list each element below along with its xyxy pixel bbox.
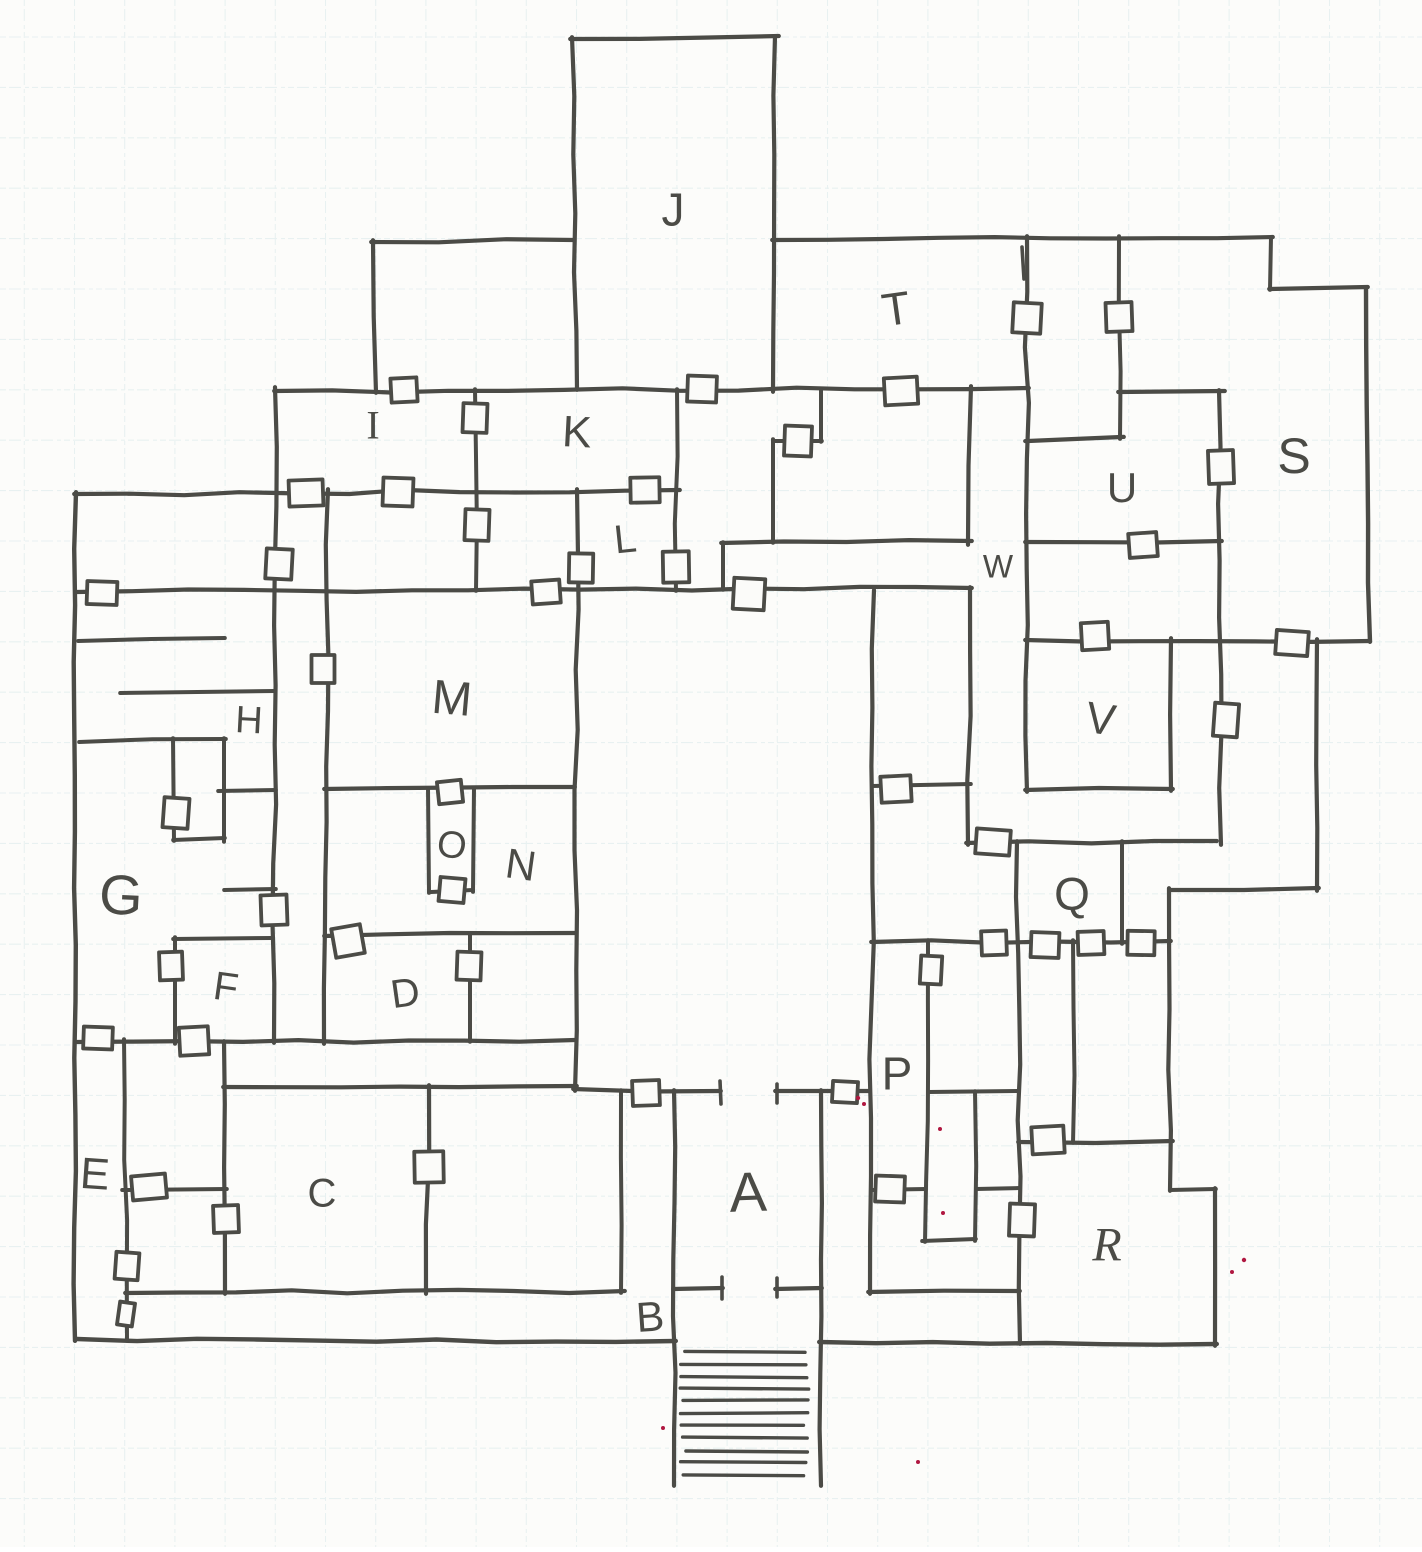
svg-text:B: B	[634, 1292, 665, 1341]
svg-text:J: J	[662, 184, 685, 236]
svg-text:H: H	[234, 699, 264, 742]
svg-text:Q: Q	[1054, 868, 1090, 920]
svg-text:N: N	[503, 839, 540, 890]
svg-text:K: K	[561, 407, 593, 457]
svg-text:L: L	[612, 516, 639, 562]
svg-text:W: W	[983, 549, 1014, 585]
svg-text:I: I	[366, 402, 379, 447]
svg-text:G: G	[98, 862, 145, 927]
svg-text:U: U	[1107, 464, 1137, 511]
svg-text:O: O	[434, 823, 469, 869]
svg-text:C: C	[308, 1171, 337, 1215]
svg-text:E: E	[79, 1149, 112, 1200]
svg-text:D: D	[388, 970, 423, 1018]
svg-text:P: P	[882, 1048, 913, 1100]
svg-text:R: R	[1091, 1218, 1121, 1271]
svg-text:M: M	[430, 671, 474, 727]
svg-text:S: S	[1277, 428, 1310, 484]
svg-text:A: A	[728, 1160, 768, 1224]
